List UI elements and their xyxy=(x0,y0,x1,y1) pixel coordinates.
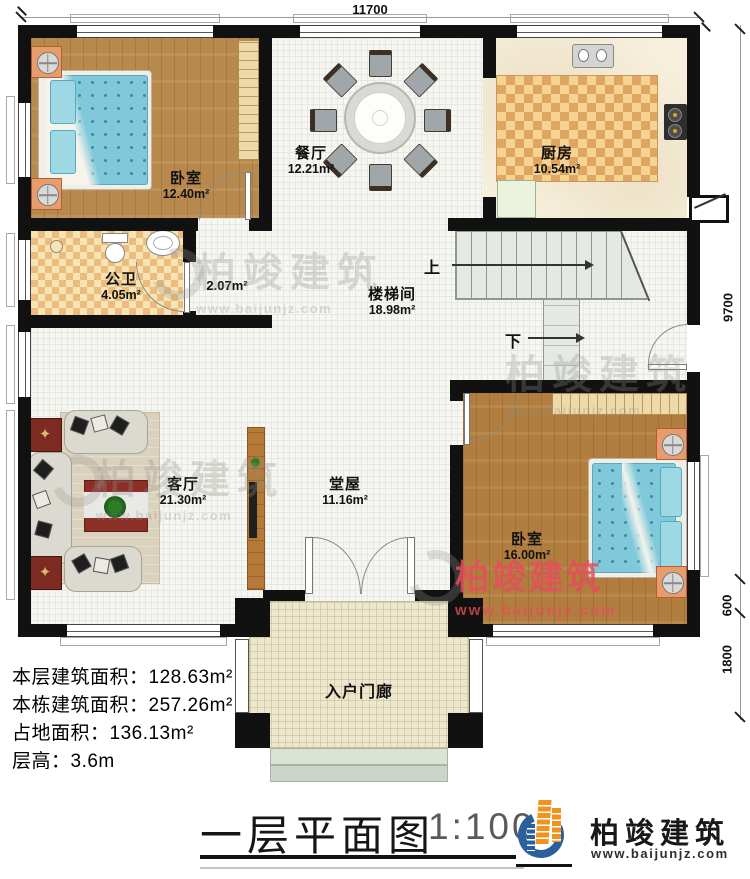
stair-down-arrow-head xyxy=(576,333,585,343)
window xyxy=(67,624,220,637)
wall-segment xyxy=(18,25,31,103)
window xyxy=(18,332,31,397)
brand-logo-building xyxy=(527,824,535,851)
corner-mark xyxy=(701,22,711,32)
room-label-hall: 堂屋 11.16m² xyxy=(295,476,395,508)
info-building-area: 本栋建筑面积：257.26m² xyxy=(12,690,233,717)
title-underline xyxy=(200,855,516,859)
room-label-bedroom1: 卧室 12.40m² xyxy=(136,170,236,202)
nightstand-lamp xyxy=(662,434,684,456)
window-sill xyxy=(510,14,669,23)
wall-segment xyxy=(249,218,272,231)
dimension-line-top xyxy=(20,17,700,18)
info-floor-area: 本层建筑面积：128.63m² xyxy=(12,662,233,689)
window-sill xyxy=(6,233,15,307)
wall-segment xyxy=(259,38,272,231)
nightstand-lamp xyxy=(37,52,59,74)
wall-segment xyxy=(450,380,700,393)
window-sill xyxy=(6,96,15,184)
window-sill xyxy=(6,325,15,404)
nightstand xyxy=(656,428,687,460)
wall-segment xyxy=(18,624,67,637)
side-table: ✦ xyxy=(28,556,62,590)
stair-up-label: 上 xyxy=(424,254,440,278)
dining-chair xyxy=(369,164,392,191)
room-label-kitchen: 厨房 10.54m² xyxy=(507,145,607,177)
stair-up-arrow-line xyxy=(452,264,585,266)
room-label-bathroom: 公卫 4.05m² xyxy=(71,271,171,303)
wall-segment xyxy=(687,25,700,197)
dimension-label-right: 600 xyxy=(720,586,735,626)
brand-logo-building xyxy=(552,808,561,842)
stove-flame-dot xyxy=(673,129,677,133)
window-sill xyxy=(70,14,220,23)
wall-segment xyxy=(18,300,31,332)
wall-segment xyxy=(31,315,272,328)
kitchen-sink-bowl xyxy=(596,49,607,62)
bathroom-sink-basin xyxy=(153,236,173,250)
wall-segment xyxy=(18,177,31,240)
nightstand-lamp xyxy=(37,184,59,206)
nightstand xyxy=(31,178,62,210)
room-label-bedroom2: 卧室 16.00m² xyxy=(477,531,577,563)
toilet-bowl xyxy=(105,243,125,263)
porch-pier xyxy=(235,598,270,637)
room-label-stairwell: 楼梯间 18.98m² xyxy=(342,286,442,318)
tv-screen xyxy=(249,482,257,538)
side-table: ✦ xyxy=(28,418,62,452)
dimension-label-right: 9700 xyxy=(721,278,736,338)
entry-door-leaf xyxy=(305,537,313,594)
stair-up-arrow-head xyxy=(585,260,594,270)
porch-step xyxy=(270,748,448,765)
window xyxy=(687,462,700,570)
porch-parapet xyxy=(235,639,249,713)
page-title: 一层平面图 xyxy=(200,802,435,863)
wall-segment xyxy=(213,25,300,38)
wall-segment xyxy=(420,25,517,38)
dining-chair xyxy=(369,50,392,77)
window xyxy=(77,25,213,38)
bed-pillow xyxy=(660,521,682,571)
toilet-tank xyxy=(102,233,128,243)
window xyxy=(517,25,662,38)
room-label-vestibule: 2.07m² xyxy=(187,279,267,294)
kitchen-sink-bowl xyxy=(578,49,589,62)
porch-parapet xyxy=(469,639,483,713)
window-sill xyxy=(60,637,227,646)
bed-pillow xyxy=(50,80,76,124)
wall-segment xyxy=(183,231,196,262)
floor-plan-page: 上 下 ✦ ✦ xyxy=(0,0,750,879)
brand-url: www.baijunjz.com xyxy=(591,846,729,861)
window xyxy=(493,624,653,637)
title-underline-thin xyxy=(200,867,524,869)
info-storey-height: 层高：3.6m xyxy=(12,746,115,773)
bed-pillow xyxy=(50,130,76,174)
room-label-porch: 入户门廊 xyxy=(299,684,419,702)
info-footprint-area: 占地面积：136.13m² xyxy=(12,718,194,745)
stair-down-label: 下 xyxy=(505,328,521,352)
dining-chair xyxy=(310,109,337,132)
window-sill xyxy=(700,455,709,577)
stair-down-arrow-line xyxy=(528,337,578,339)
nightstand xyxy=(656,566,687,598)
room-label-living: 客厅 21.30m² xyxy=(133,476,233,508)
stove-flame-dot xyxy=(673,113,677,117)
sofa-pillow xyxy=(93,557,110,574)
bed-blanket xyxy=(622,463,658,573)
porch-column xyxy=(235,713,270,748)
window xyxy=(18,103,31,177)
logo-underline xyxy=(516,864,572,867)
floor-drain xyxy=(50,240,63,253)
plant xyxy=(104,496,126,518)
wall-segment xyxy=(450,393,463,401)
wall-segment xyxy=(448,218,700,231)
dimension-label-right: 1800 xyxy=(720,637,735,683)
nightstand xyxy=(31,46,62,78)
porch-step xyxy=(270,765,448,782)
wall-segment xyxy=(653,624,700,637)
dining-table-center xyxy=(372,110,388,126)
porch-floor xyxy=(249,601,469,748)
window xyxy=(300,25,420,38)
wall-segment xyxy=(483,38,496,78)
wardrobe xyxy=(238,40,259,160)
window xyxy=(18,240,31,300)
room-label-dining: 餐厅 12.21m² xyxy=(261,145,361,177)
porch-column xyxy=(448,713,483,748)
bed-pillow xyxy=(660,467,682,517)
wall-segment xyxy=(31,218,198,231)
wall-segment xyxy=(18,397,31,624)
plant-small xyxy=(251,458,260,467)
fridge xyxy=(497,180,536,218)
wall-segment xyxy=(687,222,700,325)
dimension-label-top: 11700 xyxy=(330,2,410,17)
door-leaf xyxy=(648,364,687,370)
stair-lower-run xyxy=(543,300,580,385)
window-sill xyxy=(486,637,660,646)
nightstand-lamp xyxy=(662,572,684,594)
window-sill xyxy=(6,410,15,600)
porch-pier xyxy=(448,598,483,637)
dining-chair xyxy=(424,109,451,132)
wardrobe xyxy=(552,393,687,415)
